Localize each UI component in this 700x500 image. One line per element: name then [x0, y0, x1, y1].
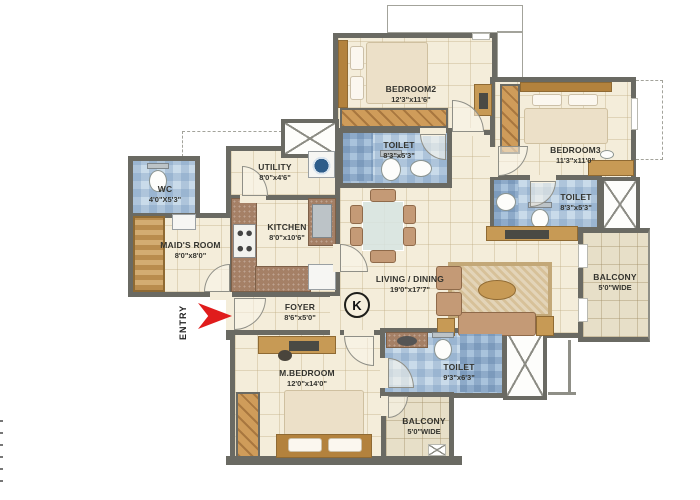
- pillow: [328, 438, 362, 452]
- dining-chair: [350, 205, 363, 224]
- dining-chair: [370, 250, 396, 263]
- door-gap-entry: [226, 298, 234, 330]
- washing-machine: [308, 151, 335, 178]
- kitchen-counter-bottom: [255, 266, 311, 292]
- wc-bowl: [434, 339, 452, 360]
- window-bedroom2: [472, 33, 490, 40]
- ledge-line-bottom-right: [548, 392, 576, 395]
- dining-table: [362, 201, 404, 251]
- tv: [505, 230, 549, 239]
- dining-chair: [403, 205, 416, 224]
- pillow: [288, 438, 322, 452]
- door-gap-maids: [210, 292, 232, 300]
- room-label-toilet3: TOILET 8'3"x5'3": [545, 192, 607, 213]
- floor-plan-canvas: BEDROOM2 12'3"x11'6" BEDROOM3 11'3"x11'0…: [0, 0, 700, 500]
- side-table: [536, 316, 554, 336]
- bed-blanket: [524, 108, 608, 144]
- railing-bottom-right: [568, 340, 571, 392]
- window-living: [578, 298, 588, 322]
- room-label-foyer: FOYER 8'6"x5'0": [270, 302, 330, 323]
- entry-label: ENTRY: [178, 292, 188, 340]
- wardrobe-master-bedroom: [236, 392, 260, 458]
- room-label-bedroom3: BEDROOM3 11'3"x11'0": [518, 145, 633, 166]
- pillow: [350, 46, 364, 70]
- bed-headboard: [520, 82, 612, 92]
- wc-tank: [147, 163, 169, 169]
- opening-foyer-living: [330, 296, 340, 336]
- shaft-bottom: [503, 328, 547, 400]
- room-label-kitchen: KITCHEN 8'0"x10'6": [252, 222, 322, 243]
- chair: [278, 350, 292, 361]
- washbasin: [410, 160, 432, 177]
- room-label-living: LIVING / DINING 19'0"x17'7": [355, 274, 465, 295]
- bed-headboard: [338, 40, 348, 108]
- compass-marker: K: [344, 292, 370, 318]
- pillow: [532, 94, 562, 106]
- room-label-balcony-right: BALCONY 5'0"WIDE: [585, 272, 645, 293]
- room-label-master-toilet: TOILET 9'3"x6'3": [428, 362, 490, 383]
- dining-chair: [370, 189, 396, 202]
- coffee-table: [478, 280, 516, 300]
- tv-console: [486, 226, 578, 241]
- cropped-edge-marks: [0, 412, 3, 482]
- dining-chair: [403, 227, 416, 246]
- sofa-long: [458, 312, 536, 336]
- bed-bedroom3: [520, 82, 612, 146]
- dresser-top-item: [289, 341, 319, 351]
- drain-box: [428, 444, 446, 456]
- dresser-master: [258, 336, 336, 354]
- dining-chair: [350, 227, 363, 246]
- door-gap-bedroom3: [490, 147, 498, 177]
- washbasin: [397, 336, 417, 346]
- door-balcony-right: [578, 244, 588, 268]
- room-label-toilet2: TOILET 8'3"x5'3": [368, 140, 430, 161]
- bed-blanket: [284, 390, 364, 436]
- bed-master: [276, 390, 372, 460]
- refrigerator: [308, 264, 336, 290]
- vanity-counter: [386, 332, 428, 348]
- terrace-ledge-outline-side: [497, 31, 523, 78]
- door-gap-utility: [240, 195, 266, 203]
- side-table: [172, 214, 196, 230]
- dresser-mirror: [479, 93, 488, 109]
- wc-tank: [432, 332, 454, 338]
- room-label-maids: MAID'S ROOM 8'0"x8'0": [148, 240, 233, 261]
- wardrobe-bedroom2: [340, 108, 448, 128]
- armchair: [436, 292, 462, 316]
- wardrobe-bedroom3: [500, 84, 520, 154]
- room-label-bedroom2: BEDROOM2 12'3"x11'6": [352, 84, 470, 105]
- pillow: [568, 94, 598, 106]
- room-label-master: M.BEDROOM 12'0"x14'0": [257, 368, 357, 389]
- room-label-utility: UTILITY 8'0"x4'6": [240, 162, 310, 183]
- room-label-wc: WC 4'0"X5'3": [134, 184, 196, 205]
- door-gap-master-toilet: [380, 358, 388, 388]
- room-label-balcony-bottom: BALCONY 5'0"WIDE: [394, 416, 454, 437]
- dashed-extension-right: [636, 80, 663, 160]
- washbasin: [496, 193, 516, 211]
- terrace-ledge-outline-top: [387, 5, 523, 33]
- wc-bowl: [381, 158, 401, 181]
- window-bedroom3: [631, 98, 638, 130]
